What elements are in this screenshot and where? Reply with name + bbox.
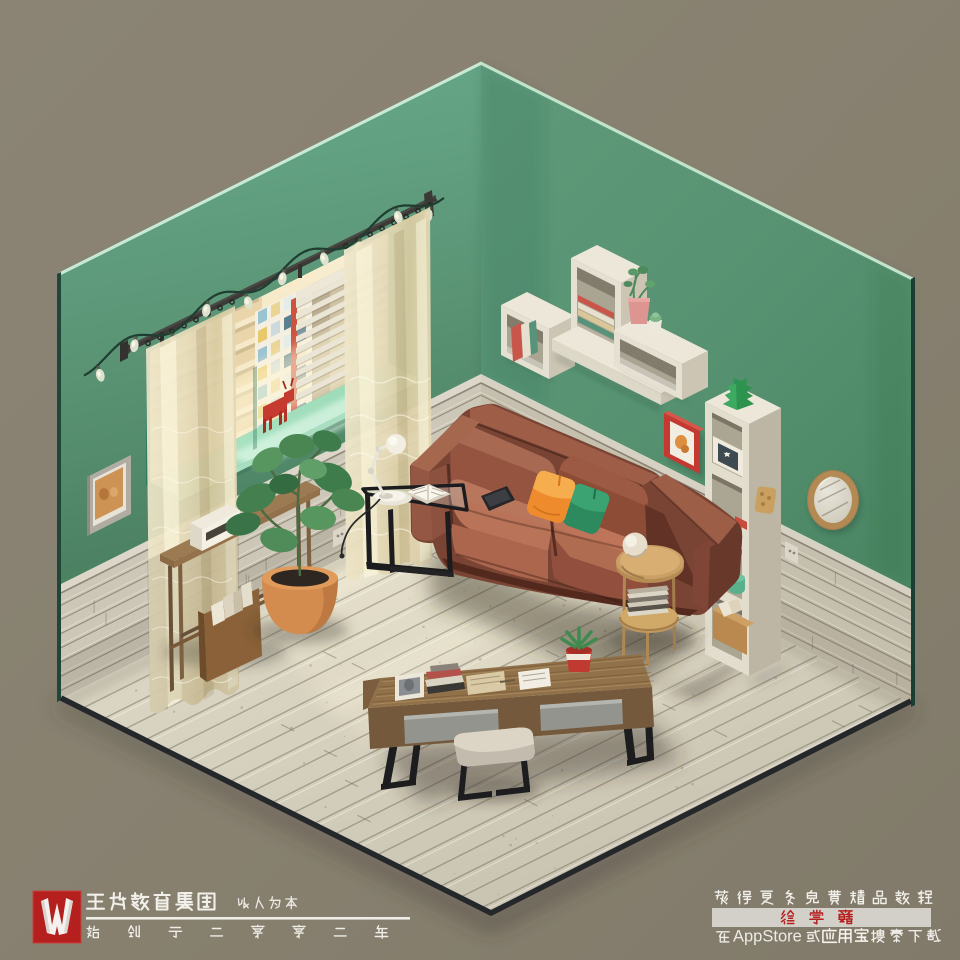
- svg-text:AppStore: AppStore: [733, 928, 802, 946]
